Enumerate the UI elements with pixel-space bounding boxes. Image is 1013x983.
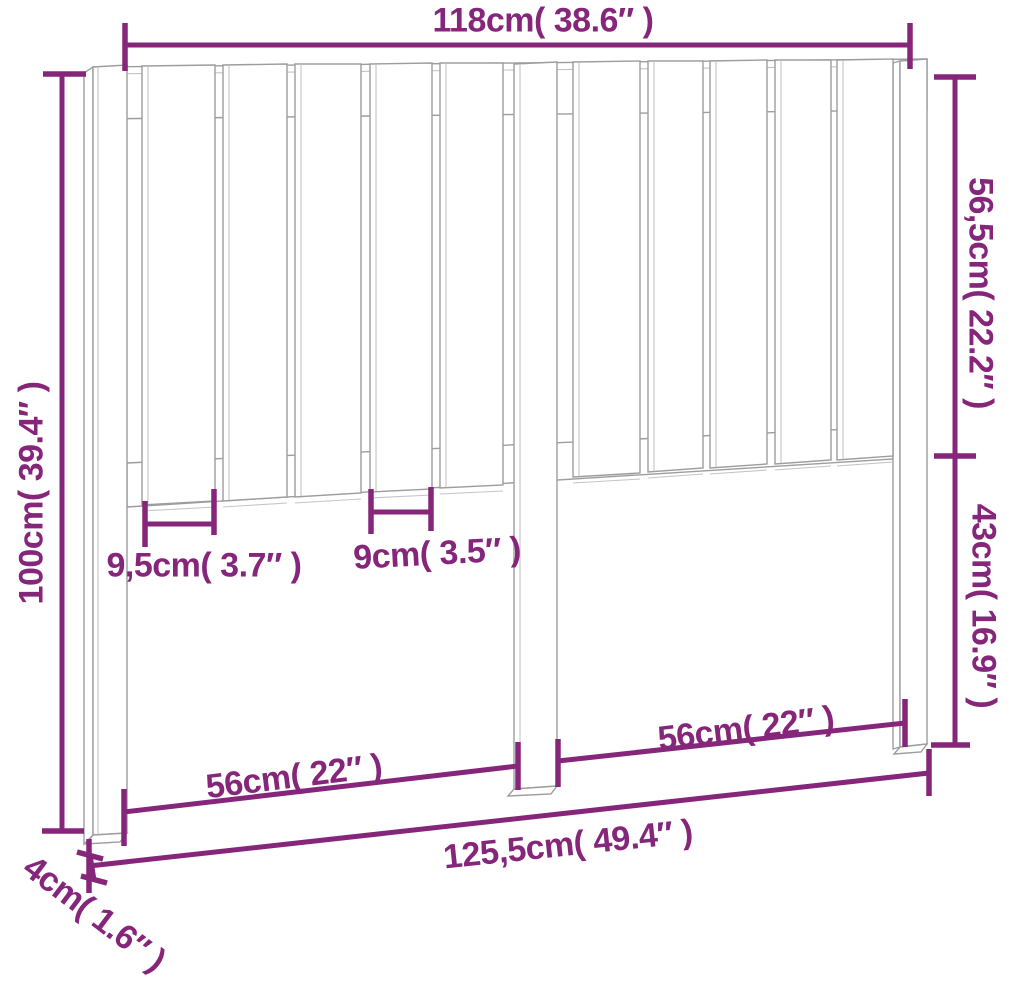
dim-label-slat-panel-height: 56,5cm( 22.2″ ) <box>961 177 1000 409</box>
slat <box>775 60 831 470</box>
right-leg <box>893 59 927 754</box>
dim-label-leg-below-panel: 43cm( 16.9″ ) <box>964 504 1003 708</box>
slat <box>370 63 432 498</box>
dimension-leg-thickness <box>77 852 107 883</box>
slat <box>573 61 640 483</box>
slat <box>440 63 503 494</box>
slat <box>837 59 893 466</box>
dim-label-slat-width-left: 9,5cm( 3.7″ ) <box>107 547 302 586</box>
slat <box>710 60 767 474</box>
headboard-dimension-diagram: 118cm( 38.6″ ) 100cm( 39.4″ ) 56,5cm( 22… <box>0 0 1013 983</box>
left-leg <box>84 65 127 844</box>
slat <box>223 64 287 507</box>
slat <box>295 64 361 503</box>
dimension-slat-width-center <box>371 487 431 534</box>
slat <box>648 61 703 478</box>
slat <box>142 65 215 511</box>
center-leg <box>508 62 557 796</box>
dim-label-top-width: 118cm( 38.6″ ) <box>433 2 654 41</box>
dim-label-left-height: 100cm( 39.4″ ) <box>13 382 52 605</box>
